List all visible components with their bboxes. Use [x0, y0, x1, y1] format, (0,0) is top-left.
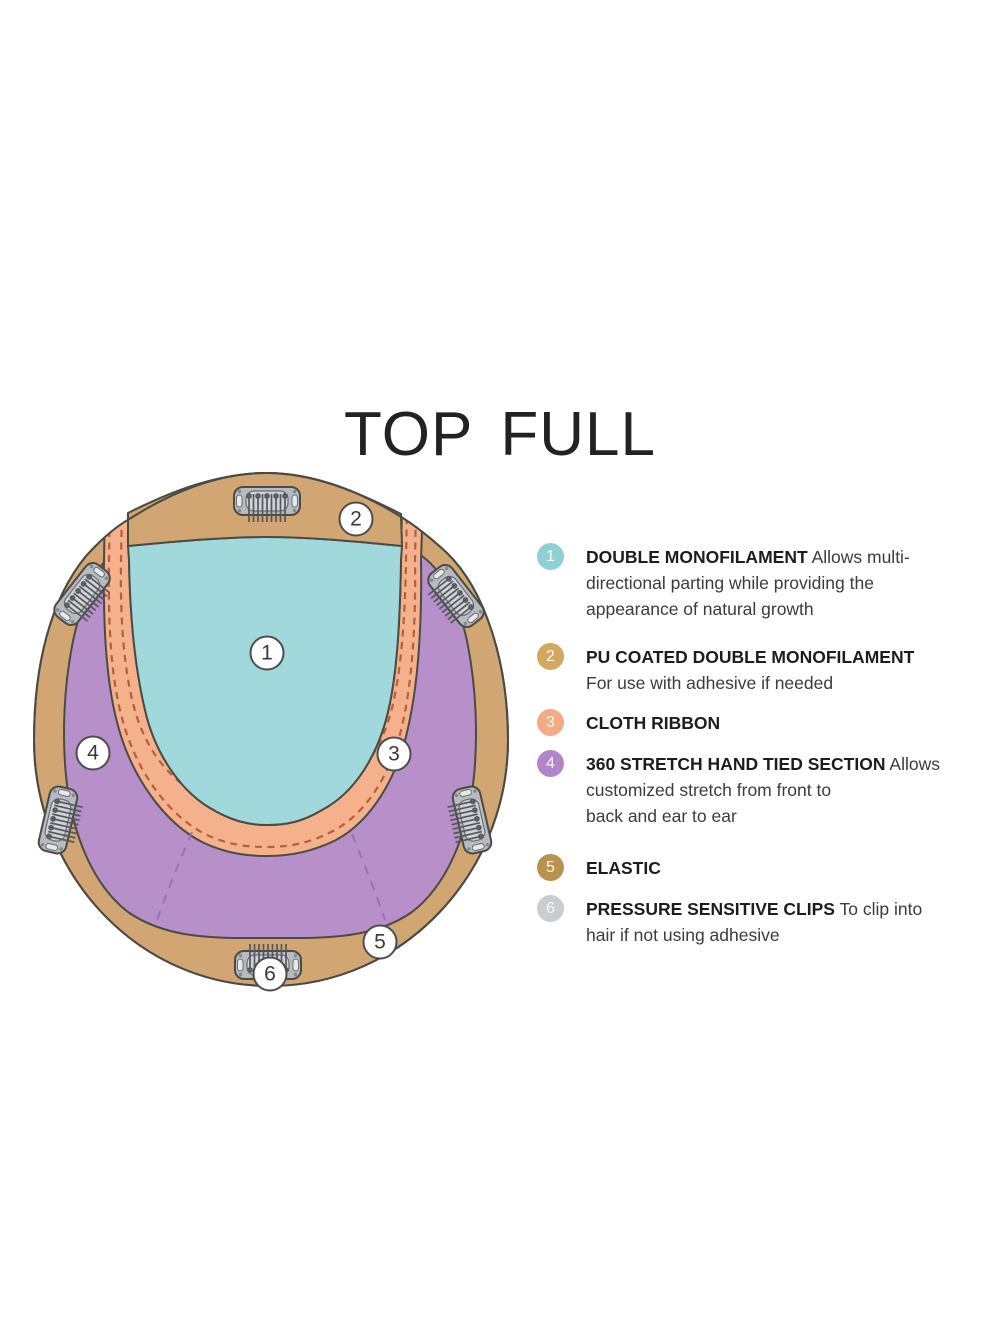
svg-text:6: 6	[264, 963, 276, 986]
svg-text:1: 1	[261, 642, 273, 665]
diagram-marker-3: 3	[378, 738, 411, 771]
diagram-marker-2: 2	[340, 503, 373, 536]
svg-text:4: 4	[87, 742, 99, 765]
diagram-marker-5: 5	[364, 926, 397, 959]
legend-item-pu-coated: 2 PU COATED DOUBLE MONOFILAMENT For use …	[537, 644, 967, 696]
legend-badge-6: 6	[537, 895, 564, 922]
svg-text:3: 3	[388, 743, 400, 766]
legend-item-double-monofilament: 1 DOUBLE MONOFILAMENT Allows multi- dire…	[537, 544, 967, 622]
svg-text:2: 2	[350, 508, 362, 531]
legend: 1 DOUBLE MONOFILAMENT Allows multi- dire…	[537, 544, 967, 948]
legend-text-2: PU COATED DOUBLE MONOFILAMENT For use wi…	[586, 644, 966, 696]
legend-badge-5: 5	[537, 854, 564, 881]
legend-text-6: PRESSURE SENSITIVE CLIPS To clip into ha…	[586, 896, 966, 948]
legend-item-cloth-ribbon: 3 CLOTH RIBBON	[537, 710, 967, 736]
legend-badge-1: 1	[537, 543, 564, 570]
diagram-marker-1: 1	[251, 637, 284, 670]
legend-text-4: 360 STRETCH HAND TIED SECTION Allows cus…	[586, 751, 966, 829]
legend-badge-4: 4	[537, 750, 564, 777]
legend-badge-3: 3	[537, 709, 564, 736]
cap-diagram: 1 2 3 4 5 6	[0, 450, 560, 1010]
svg-text:5: 5	[374, 931, 386, 954]
page: TOP FULL	[0, 0, 1000, 1333]
legend-badge-2: 2	[537, 643, 564, 670]
legend-text-3: CLOTH RIBBON	[586, 710, 966, 736]
legend-text-1: DOUBLE MONOFILAMENT Allows multi- direct…	[586, 544, 966, 622]
legend-item-pressure-clips: 6 PRESSURE SENSITIVE CLIPS To clip into …	[537, 896, 967, 948]
legend-item-360-stretch: 4 360 STRETCH HAND TIED SECTION Allows c…	[537, 751, 967, 829]
diagram-marker-6: 6	[254, 958, 287, 991]
legend-item-elastic: 5 ELASTIC	[537, 855, 967, 881]
legend-text-5: ELASTIC	[586, 855, 966, 881]
diagram-marker-4: 4	[77, 737, 110, 770]
